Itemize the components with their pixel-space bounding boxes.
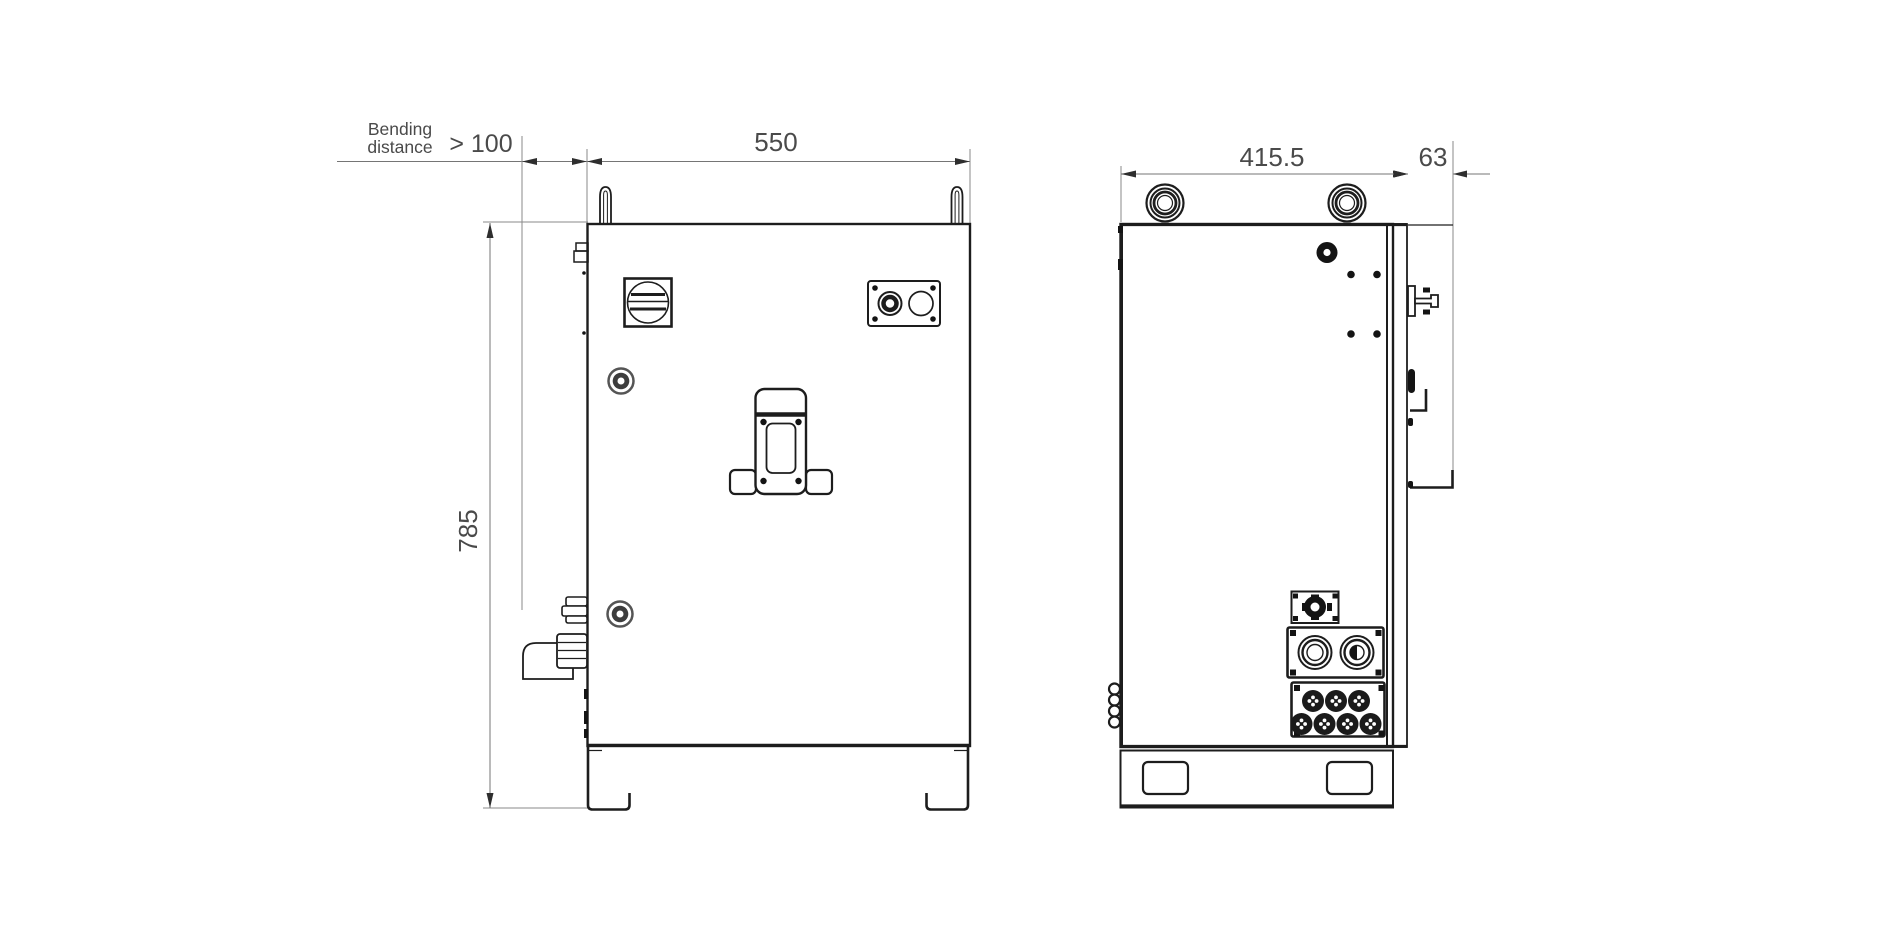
cabinet-dimension-drawing: Bending distance > 100 550 785 (0, 0, 1890, 928)
door-hinge (1408, 286, 1438, 316)
door-seal-tick (584, 711, 589, 724)
wall-tick (1118, 226, 1123, 233)
mounting-hole (1373, 330, 1381, 338)
lifting-ring-right (1329, 185, 1366, 222)
multi-pin-connector-panel (1291, 683, 1385, 737)
side-base-frame (1120, 751, 1393, 808)
coil-symbol (1109, 684, 1120, 728)
front-width-dimension: 550 (587, 127, 970, 223)
base-cutout-left (1143, 762, 1188, 794)
door-button-upper (609, 369, 634, 394)
panel-corner-screw (930, 316, 936, 322)
front-width-value: 550 (754, 127, 797, 157)
panel-corner-screw (872, 285, 878, 291)
lifting-eye-right (952, 187, 963, 224)
door-seal-tick (584, 729, 589, 738)
hinge-pin-upper (582, 271, 586, 275)
base-cutout-right (1327, 762, 1372, 794)
door-handle (730, 389, 832, 494)
mounting-hole (1347, 330, 1355, 338)
front-base-frame (588, 746, 968, 810)
door-depth-value: 63 (1419, 142, 1448, 172)
side-view: 415.5 63 (1109, 141, 1490, 808)
side-indicator-button (1317, 242, 1338, 263)
hex-cable-gland (562, 597, 587, 623)
handle-foot-left (730, 470, 756, 494)
bending-value: > 100 (449, 130, 512, 158)
side-door-panel (1393, 224, 1407, 747)
side-width-value: 415.5 (1239, 142, 1304, 172)
dual-button-panel (868, 281, 940, 326)
lifting-ring-left (1147, 185, 1184, 222)
hinge-pin-mid (582, 331, 586, 335)
large-cable-gland (557, 634, 587, 668)
door-stop-bracket (1408, 470, 1453, 488)
wall-tick (1118, 259, 1123, 270)
bending-label-line2: distance (367, 137, 432, 157)
top-cable-gland (574, 243, 588, 262)
push-button-right (909, 292, 933, 316)
front-view: Bending distance > 100 550 785 (337, 119, 970, 810)
door-button-lower (608, 602, 633, 627)
front-height-value: 785 (453, 509, 483, 552)
door-seal-tick (584, 689, 589, 699)
mounting-hole (1347, 271, 1355, 279)
gear-connector (1292, 592, 1339, 624)
bending-label-line1: Bending (368, 119, 432, 139)
handle-foot-right (806, 470, 832, 494)
panel-corner-screw (930, 285, 936, 291)
panel-corner-screw (872, 316, 878, 322)
mounting-hole (1373, 271, 1381, 279)
front-height-dimension: 785 (453, 222, 588, 808)
lifting-eye-left (600, 187, 611, 224)
technical-drawing-canvas: Bending distance > 100 550 785 (0, 0, 1890, 928)
round-socket-panel (1288, 628, 1384, 678)
rotary-switch (625, 279, 672, 327)
latch-bracket (1408, 369, 1426, 426)
